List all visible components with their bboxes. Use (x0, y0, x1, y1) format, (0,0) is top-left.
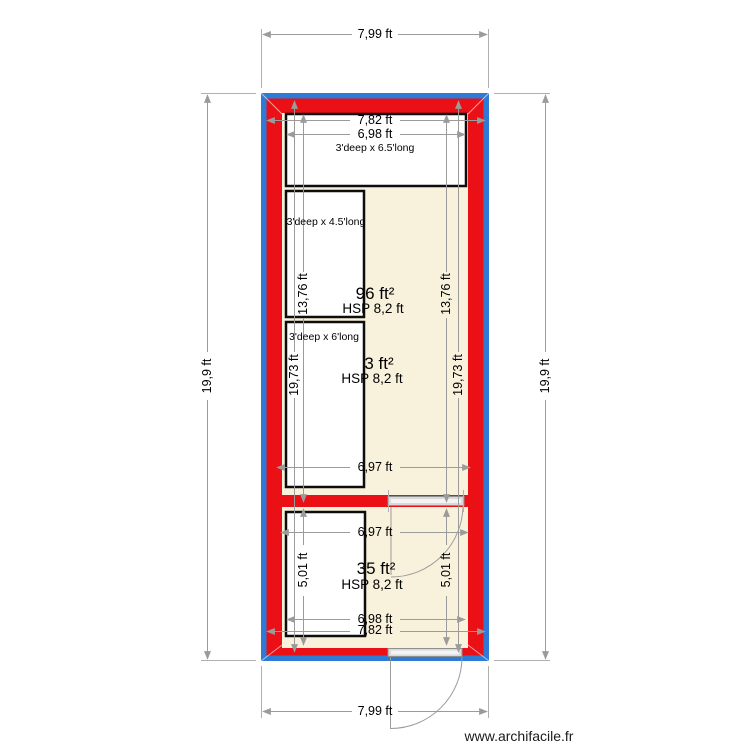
dim-exterior-right: 19,9 ft (538, 358, 552, 393)
room3-ceiling-height-label: HSP 8,2 ft (341, 577, 403, 592)
dim-room2-width-bottom: 6,97 ft (358, 460, 393, 474)
dim-exterior-top: 7,99 ft (358, 27, 393, 41)
room3-area-label: 35 ft² (357, 559, 396, 578)
dim-room3-height-left: 5,01 ft (296, 552, 310, 587)
dim-room1-width-inner: 6,98 ft (358, 127, 393, 141)
closet-middle-left-label: 3'deep x 6'long (289, 331, 359, 343)
dim-room3-width-top: 6,97 ft (358, 525, 393, 539)
dim-exterior-bottom: 7,99 ft (358, 704, 393, 718)
dim-room1-height-right: 13,76 ft (439, 273, 453, 315)
room1-ceiling-height-label: HSP 8,2 ft (342, 301, 404, 316)
dim-room1-height-left: 13,76 ft (296, 273, 310, 315)
dim-room3-height-right: 5,01 ft (439, 552, 453, 587)
dim-room1-width-outer: 7,82 ft (358, 113, 393, 127)
floor-plan-canvas: 7,99 ft 7,99 ft 19,9 ft 19,9 ft 7,82 ft … (0, 0, 750, 750)
watermark: www.archifacile.fr (464, 728, 574, 744)
closet-middle-left[interactable] (286, 322, 364, 487)
closet-top-wide-label: 3'deep x 6.5'long (336, 142, 415, 154)
dim-room2-height-left: 19,73 ft (287, 354, 301, 396)
room2-ceiling-height-label: HSP 8,2 ft (341, 371, 403, 386)
dim-room3-width-outer: 7,82 ft (358, 623, 393, 637)
dim-exterior-left: 19,9 ft (200, 358, 214, 393)
dim-room2-height-right: 19,73 ft (451, 354, 465, 396)
closet-upper-left-label: 3'deep x 4.5'long (287, 216, 366, 228)
